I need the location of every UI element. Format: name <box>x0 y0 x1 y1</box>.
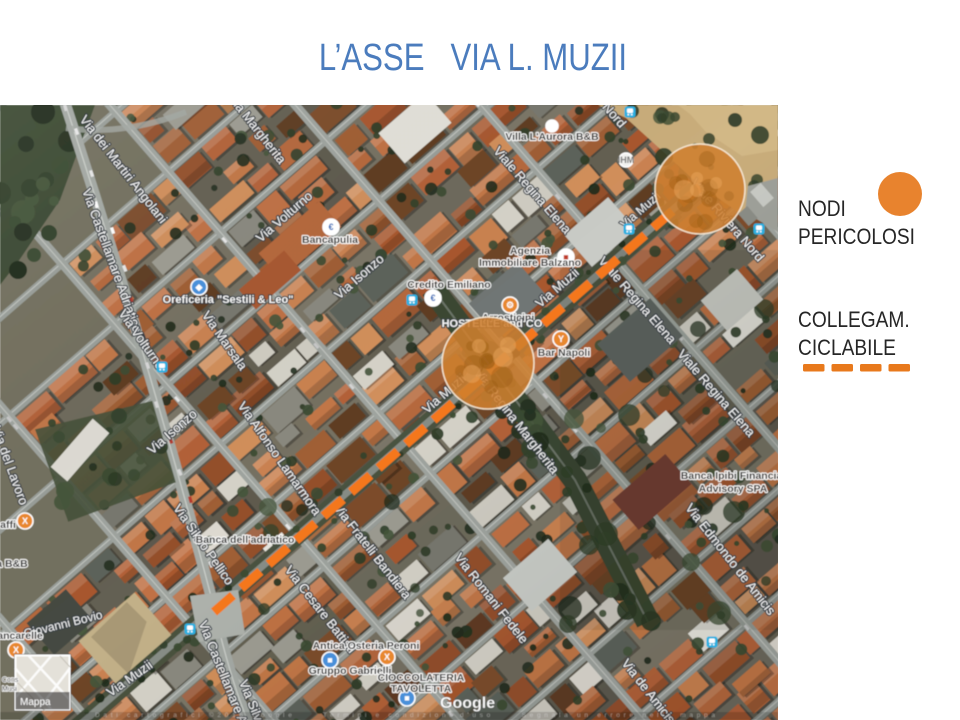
svg-text:⚙: ⚙ <box>506 300 514 310</box>
svg-text:■: ■ <box>327 655 332 665</box>
svg-text:Banca Ipibi Financial: Banca Ipibi Financial <box>681 470 778 482</box>
svg-text:X: X <box>13 645 19 655</box>
svg-text:€: € <box>328 222 333 232</box>
svg-text:Oreficeria "Sestili & Leo": Oreficeria "Sestili & Leo" <box>163 294 294 306</box>
svg-text:Mappa: Mappa <box>20 697 51 708</box>
svg-text:X: X <box>22 516 28 526</box>
svg-text:affi: affi <box>0 519 16 531</box>
svg-text:ancarelle: ancarelle <box>0 630 43 642</box>
svg-text:Y: Y <box>558 334 564 344</box>
svg-text:Credito Emiliano: Credito Emiliano <box>407 279 490 291</box>
svg-text:Google: Google <box>440 695 495 712</box>
svg-text:a B&B: a B&B <box>0 558 28 570</box>
svg-text:X: X <box>384 652 390 662</box>
svg-text:Cons: Cons <box>2 677 19 684</box>
svg-text:Banca dell'adriatico: Banca dell'adriatico <box>196 534 295 546</box>
svg-text:€: € <box>430 293 435 303</box>
svg-text:◆: ◆ <box>195 282 204 292</box>
svg-text:Immobiliare Balzano: Immobiliare Balzano <box>479 257 581 269</box>
svg-text:Antica Osteria Peroni: Antica Osteria Peroni <box>313 640 420 652</box>
svg-text:Musi: Musi <box>2 686 17 693</box>
svg-text:IHM: IHM <box>618 155 635 165</box>
svg-text:TAVOLETTA: TAVOLETTA <box>391 683 452 695</box>
svg-text:Bar Napoli: Bar Napoli <box>538 347 591 359</box>
svg-text:Bancapulia: Bancapulia <box>302 234 358 246</box>
svg-text:Advisory SPA: Advisory SPA <box>699 483 768 495</box>
svg-text:Villa L'Aurora B&B: Villa L'Aurora B&B <box>505 131 599 143</box>
svg-text:Agenzia: Agenzia <box>510 245 550 257</box>
